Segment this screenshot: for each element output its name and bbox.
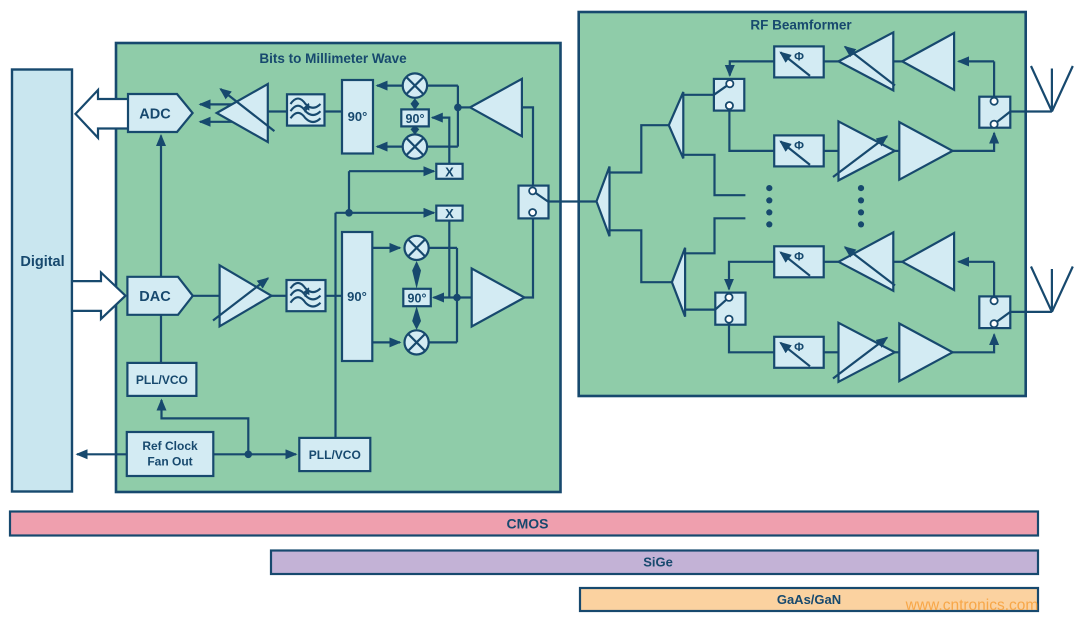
svg-text:CMOS: CMOS — [507, 516, 549, 532]
svg-text:Fan Out: Fan Out — [147, 455, 192, 469]
svg-text:RF Beamformer: RF Beamformer — [750, 18, 852, 33]
svg-text:www.cntronics.com: www.cntronics.com — [905, 597, 1039, 614]
svg-text:90°: 90° — [406, 112, 425, 126]
svg-text:GaAs/GaN: GaAs/GaN — [777, 592, 841, 607]
svg-text:Digital: Digital — [20, 254, 64, 270]
svg-text:SiGe: SiGe — [643, 555, 673, 570]
svg-text:90°: 90° — [408, 291, 427, 305]
svg-text:PLL/VCO: PLL/VCO — [136, 373, 188, 387]
svg-text:ADC: ADC — [139, 106, 171, 122]
svg-text:Φ: Φ — [794, 50, 804, 64]
svg-text:Ref Clock: Ref Clock — [142, 439, 198, 453]
svg-text:PLL/VCO: PLL/VCO — [309, 448, 361, 462]
svg-text:Φ: Φ — [794, 340, 804, 354]
svg-text:Φ: Φ — [794, 139, 804, 153]
svg-text:X: X — [445, 164, 454, 179]
svg-text:DAC: DAC — [139, 289, 171, 305]
svg-text:Φ: Φ — [794, 249, 804, 263]
svg-text:X: X — [445, 206, 454, 221]
svg-text:90°: 90° — [348, 109, 368, 124]
svg-text:Bits to Millimeter Wave: Bits to Millimeter Wave — [259, 51, 407, 66]
svg-text:90°: 90° — [347, 289, 367, 304]
